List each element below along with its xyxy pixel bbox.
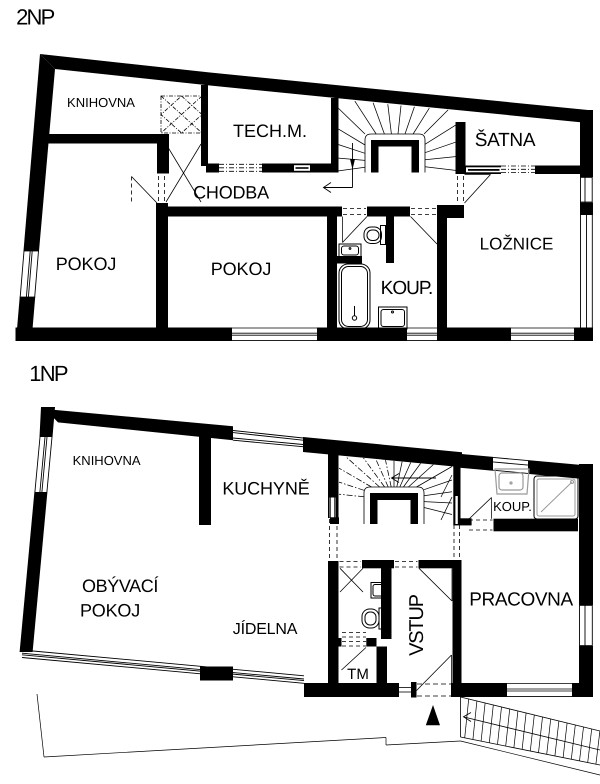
svg-text:POKOJ: POKOJ	[80, 601, 140, 621]
svg-text:KUCHYNĚ: KUCHYNĚ	[222, 479, 309, 499]
svg-text:VSTUP: VSTUP	[406, 594, 428, 656]
svg-text:KOUP.: KOUP.	[381, 278, 433, 299]
svg-text:OBÝVACÍ: OBÝVACÍ	[82, 576, 158, 596]
svg-text:LOŽNICE: LOŽNICE	[480, 235, 554, 254]
svg-text:POKOJ: POKOJ	[56, 254, 117, 274]
svg-text:2NP: 2NP	[16, 5, 55, 30]
svg-text:JÍDELNA: JÍDELNA	[233, 620, 298, 638]
svg-text:CHODBA: CHODBA	[193, 183, 269, 203]
svg-text:KOUP.: KOUP.	[493, 499, 532, 514]
svg-text:POKOJ: POKOJ	[211, 259, 272, 279]
svg-text:KNIHOVNA: KNIHOVNA	[67, 95, 135, 110]
svg-text:TM: TM	[347, 666, 369, 683]
svg-text:1NP: 1NP	[29, 361, 68, 386]
svg-text:KNIHOVNA: KNIHOVNA	[73, 453, 141, 468]
svg-text:TECH.M.: TECH.M.	[233, 121, 307, 141]
svg-text:ŠATNA: ŠATNA	[475, 129, 536, 151]
svg-text:PRACOVNA: PRACOVNA	[469, 590, 573, 611]
